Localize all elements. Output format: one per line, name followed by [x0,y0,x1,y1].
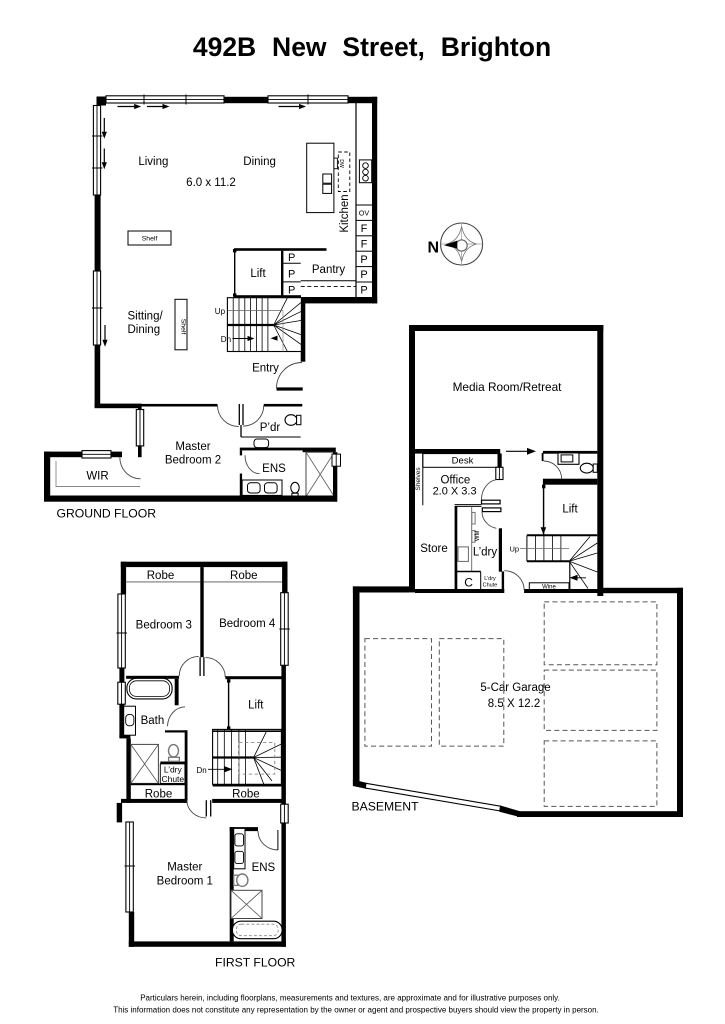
svg-text:Robe: Robe [145,789,173,801]
svg-text:6.0 x 11.2: 6.0 x 11.2 [186,177,236,189]
svg-text:WIR: WIR [86,471,108,483]
svg-text:Up: Up [215,307,226,316]
svg-text:Lift: Lift [250,268,266,280]
svg-text:OV: OV [359,209,370,218]
svg-text:Shelf: Shelf [142,236,158,243]
svg-text:P: P [360,254,367,266]
svg-text:Lift: Lift [562,504,578,516]
svg-text:P: P [288,284,295,296]
svg-text:Chute: Chute [483,582,498,588]
svg-text:Bedroom 4: Bedroom 4 [219,618,276,630]
svg-text:Dn: Dn [221,335,231,344]
svg-text:492B New Street, Brighton: 492B New Street, Brighton [193,32,551,62]
svg-text:This information does not cons: This information does not constitute any… [113,1006,599,1015]
svg-text:GROUND FLOOR: GROUND FLOOR [57,507,157,521]
svg-text:Dining: Dining [243,156,276,168]
svg-text:P: P [360,285,367,297]
svg-text:Living: Living [138,156,168,168]
svg-text:Bath: Bath [141,715,165,727]
svg-text:2.0 X 3.3: 2.0 X 3.3 [433,485,477,497]
svg-text:Bedroom 1: Bedroom 1 [157,875,213,887]
svg-text:Master: Master [167,862,202,874]
svg-text:Dn: Dn [197,766,207,775]
svg-text:L’dry: L’dry [484,576,496,582]
svg-text:FIRST FLOOR: FIRST FLOOR [215,956,296,970]
svg-text:Desk: Desk [452,455,474,466]
svg-text:Robe: Robe [230,570,258,582]
svg-text:Dining: Dining [128,324,161,336]
svg-text:Bedroom 2: Bedroom 2 [165,455,221,467]
svg-text:Robe: Robe [147,570,175,582]
svg-text:Lift: Lift [248,700,264,712]
svg-text:Master: Master [175,441,210,453]
svg-text:Particulars herein, including: Particulars herein, including floorplans… [140,994,560,1003]
svg-text:L’dry: L’dry [164,764,183,774]
svg-text:DW: DW [338,159,344,168]
svg-text:Media Room/Retreat: Media Room/Retreat [453,380,563,394]
svg-text:N: N [428,240,440,257]
svg-text:Up: Up [510,544,520,553]
svg-text:F: F [361,238,368,250]
svg-text:P: P [288,269,295,281]
svg-text:Store: Store [420,543,448,555]
svg-text:Robe: Robe [232,789,260,801]
svg-text:5-Car Garage: 5-Car Garage [480,682,550,694]
svg-text:Chute: Chute [161,774,184,784]
svg-text:ENS: ENS [252,862,276,874]
svg-text:P: P [288,252,295,264]
svg-text:8.5 X 12.2: 8.5 X 12.2 [488,698,540,710]
svg-text:C: C [464,575,473,589]
svg-text:WM: WM [475,530,481,541]
svg-text:Kitchen: Kitchen [339,194,351,232]
svg-text:P’dr: P’dr [260,422,281,434]
svg-text:BASEMENT: BASEMENT [352,800,420,814]
svg-text:F: F [361,223,368,235]
svg-text:L’dry: L’dry [473,546,498,558]
svg-text:P: P [360,269,367,281]
svg-text:Shelf: Shelf [180,319,187,335]
svg-text:Bedroom 3: Bedroom 3 [136,619,192,631]
svg-text:Pantry: Pantry [312,264,345,276]
svg-text:Sitting/: Sitting/ [128,311,164,323]
svg-text:Shelves: Shelves [415,467,422,491]
svg-text:Entry: Entry [252,363,279,375]
svg-text:ENS: ENS [262,463,286,475]
